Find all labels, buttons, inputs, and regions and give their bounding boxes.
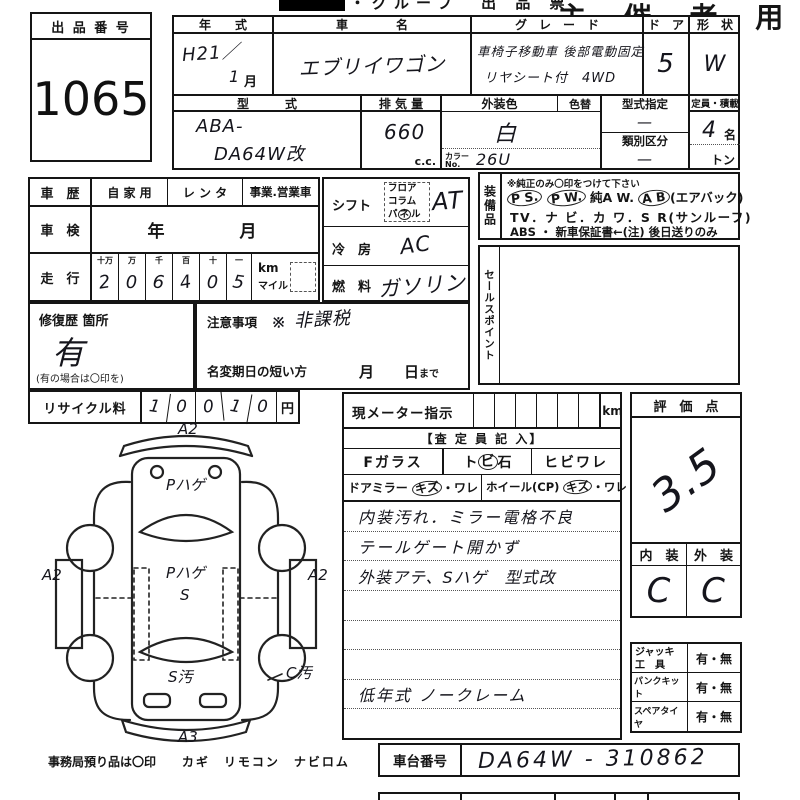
- assessor-note-line: 内装汚れ．ミラー電格不良: [344, 502, 620, 532]
- door-mirror-label: ドアミラー: [348, 481, 408, 495]
- rename-deadline-value: 月 日まで: [359, 361, 439, 382]
- extcolor-value: 白: [494, 116, 517, 148]
- ac-value: AC: [398, 231, 432, 259]
- carname-value: エブリイワゴン: [273, 31, 471, 98]
- assessor-title: 【査 定 員 記 入】: [344, 429, 620, 449]
- capacity-unit: 名: [724, 126, 736, 143]
- ton-row: トン: [690, 144, 740, 172]
- model-value-line2: DA64W改: [214, 140, 305, 166]
- meter-digit-box: [536, 394, 558, 427]
- car-diagram-svg: A2 Pハゲ A2 Pハゲ S A2 S汚 C汚 A3: [40, 420, 332, 746]
- grade-cell: グ レ ー ド 車椅子移動車 後部電動固定 リヤシート付 4WD: [472, 17, 644, 94]
- ton-label: トン: [711, 151, 735, 168]
- lot-number: 1065: [32, 40, 150, 158]
- mirror-wheel-row: ドアミラー キズ・ワレ ホイール(CP) キズ・ワレ: [344, 475, 620, 502]
- shift-panel: パネル: [388, 209, 429, 222]
- chassis-box: 車台番号 DA64W - 310862: [378, 743, 740, 777]
- office-note: 事務局預り品は〇印 カギ リモコン ナビロム: [48, 753, 350, 770]
- bottom-table-divider: [614, 794, 616, 800]
- meter-digit-box: [494, 394, 516, 427]
- crack-label: ヒビワレ: [532, 449, 620, 474]
- recycle-digit: 1: [221, 390, 253, 424]
- inspection-value: 年 月: [92, 207, 318, 254]
- mirror-kizu-circled: キズ: [411, 479, 442, 497]
- sales-point-box: セールスポイント: [478, 245, 740, 385]
- exterior-grade: C: [687, 566, 740, 616]
- odometer-digits: 十万 2 万 0 千 6 百 4 十 0 一 5: [92, 254, 252, 300]
- shift-position-box: フロア コラム パネル: [384, 182, 430, 222]
- spare-tire-label: スペアタイヤ: [632, 702, 688, 731]
- diagram-anno-center: Pハゲ: [166, 564, 207, 582]
- jack-label1: ジャッキ: [635, 646, 687, 659]
- equipment-box: 装備品 ※純正のみ〇印をつけて下さい P S. P W. 純A W. A B(エ…: [478, 172, 740, 240]
- history-private: 自 家 用: [92, 179, 168, 207]
- recycle-fee-label: リサイクル料: [30, 392, 142, 422]
- mirror-ware-label: ・ワレ: [442, 481, 478, 495]
- class-division-value: —: [602, 148, 688, 170]
- car-diagram: A2 Pハゲ A2 Pハゲ S A2 S汚 C汚 A3: [40, 420, 332, 746]
- capacity-cell: 定員・積載 4 名 トン: [690, 94, 740, 170]
- airbag-label: (エアバック): [670, 190, 743, 205]
- diagram-anno-left: A2: [41, 566, 62, 584]
- shift-panel-c: ル: [411, 209, 421, 220]
- type-designation-cell: 型式指定 — 類別区分 —: [602, 94, 690, 170]
- wheel-cell: ホイール(CP) キズ・ワレ: [482, 475, 624, 500]
- assessor-note-line: [344, 709, 620, 738]
- repair-note: (有の場合は〇印を): [36, 370, 124, 385]
- meter-label: 現メーター指示: [352, 402, 454, 422]
- caution-box: 注意事項 ※ 非課税 名変期日の短い方 月 日まで: [195, 302, 470, 390]
- extcolor-cell: 外装色 色替 白 カラー No. 26U: [442, 94, 602, 170]
- capacity-value: 4: [702, 118, 717, 143]
- year-value: H21／: [181, 37, 241, 67]
- diagram-anno-rear: S汚: [168, 668, 195, 686]
- color-no-label2: No.: [445, 160, 460, 169]
- rating-label: 評 価 点: [632, 394, 740, 418]
- meter-digit-box: [473, 394, 495, 427]
- interior-label: 内 装: [632, 544, 687, 566]
- rating-box: 評 価 点 3.5 内 装 外 装 C C: [630, 392, 742, 618]
- odo-digit-cell: 千 6: [146, 254, 173, 300]
- recycle-fee-box: リサイクル料 1 0 0 1 0 円: [28, 390, 300, 424]
- shape-cell: 形 状 W: [690, 17, 740, 94]
- repair-value: 有: [52, 328, 85, 374]
- displacement-value: 660: [384, 120, 425, 144]
- odo-digit: 6: [144, 265, 173, 300]
- glass-row: Fガラス トビ石 ヒビワレ: [344, 449, 620, 475]
- class-division-label: 類別区分: [602, 132, 688, 148]
- tobi-a: ト: [464, 452, 478, 472]
- shift-column: コラム: [388, 196, 429, 209]
- fuel-row: 燃 料 ガソリン: [324, 266, 468, 302]
- rating-value-area: 3.5: [632, 418, 740, 544]
- shift-row: シフト フロア コラム パネル AT: [324, 179, 468, 227]
- shift-panel-a: パ: [388, 209, 398, 220]
- history-commercial: 事業.営業車: [243, 179, 318, 207]
- mile-unit-label: マイル: [258, 277, 288, 292]
- diagram-anno-right: A2: [307, 566, 328, 584]
- tobi-c: 石: [498, 452, 512, 472]
- meter-row: 現メーター指示 km: [344, 394, 620, 429]
- sales-point-strip: セールスポイント: [480, 247, 500, 383]
- type-designation-label: 型式指定: [602, 96, 688, 112]
- assessor-note-line: テールゲート開かず: [344, 532, 620, 562]
- displacement-unit: c.c.: [415, 155, 436, 168]
- model-value-line1: ABA-: [196, 116, 243, 137]
- recycle-digit: 1: [140, 390, 171, 423]
- rename-deadline-label: 名変期日の短い方: [207, 361, 307, 380]
- year-label: 年 式: [174, 17, 272, 34]
- recycle-digit: 0: [250, 392, 277, 422]
- jack-row: ジャッキ 工 具 有・無: [632, 644, 740, 673]
- shift-floor: フロア: [388, 183, 429, 196]
- model-cell: 型 式 ABA- DA64W改: [174, 94, 362, 170]
- color-no-value: 26U: [476, 150, 511, 169]
- stone-chip-label: トビ石: [444, 449, 532, 474]
- odo-place-label: 十: [200, 254, 226, 266]
- odo-digit: 0: [119, 266, 145, 298]
- equipment-label-strip: 装備品: [480, 174, 502, 238]
- type-designation-value: —: [602, 112, 688, 132]
- door-value: 5: [644, 34, 688, 94]
- redaction-bar: [279, 0, 345, 11]
- assessor-note-line: [344, 650, 620, 680]
- odo-digit-cell: 十 0: [200, 254, 227, 300]
- grade-label: グ レ ー ド: [472, 17, 642, 34]
- odo-digit-cell: 十万 2: [92, 254, 119, 300]
- jack-value: 有・無: [688, 644, 740, 672]
- assessor-note-line: [344, 591, 620, 621]
- bottom-table-divider: [554, 794, 556, 800]
- carname-cell: 車 名 エブリイワゴン: [274, 17, 472, 94]
- ab-circled: A B: [638, 188, 671, 207]
- diagram-anno-center2: S: [180, 586, 190, 604]
- extcolor-label: 外装色: [442, 96, 557, 112]
- exterior-label: 外 装: [687, 544, 740, 566]
- front-glass-label: Fガラス: [344, 449, 444, 474]
- door-cell: ド ア 5: [644, 17, 690, 94]
- fuel-label: 燃 料: [332, 276, 371, 295]
- assessor-note-line: 低年式 ノークレーム: [344, 680, 620, 710]
- bottom-partial-table: [378, 792, 740, 800]
- repair-label: 修復歴 箇所: [39, 310, 109, 329]
- caution-label: 注意事項: [207, 312, 257, 331]
- equipment-label: 装備品: [482, 185, 499, 227]
- sheet-title: ・グループ 出 品 票: [350, 0, 572, 13]
- chassis-label: 車台番号: [380, 745, 462, 775]
- meter-unit: km: [599, 394, 624, 427]
- year-month-label: 月: [244, 71, 257, 90]
- aw-label: 純A W.: [590, 190, 634, 205]
- assessor-note-line: [344, 621, 620, 651]
- grade-value-line1: 車椅子移動車 後部電動固定: [477, 41, 644, 60]
- odo-digit: 4: [170, 264, 201, 300]
- office-note-label: 事務局預り品は〇印: [48, 755, 156, 769]
- caution-value: ※ 非課税: [270, 304, 351, 334]
- tobi-circled: ビ: [478, 454, 498, 470]
- rating-value: 3.5: [641, 438, 730, 522]
- odo-digit-cell: 一 5: [227, 254, 252, 300]
- puncture-kit-value: 有・無: [688, 673, 740, 701]
- spare-tire-row: スペアタイヤ 有・無: [632, 702, 740, 731]
- rename-made: まで: [419, 369, 439, 380]
- bottom-table-divider: [647, 794, 649, 800]
- diagram-anno-bottom: A3: [177, 728, 198, 746]
- interior-grade: C: [632, 566, 687, 616]
- capacity-label: 定員・積載: [690, 96, 740, 112]
- jack-label-cell: ジャッキ 工 具: [632, 644, 688, 672]
- puncture-kit-row: パンクキット 有・無: [632, 673, 740, 702]
- equipment-line1: P S. P W. 純A W. A B(エアバック): [507, 187, 743, 206]
- chassis-value: DA64W - 310862: [478, 745, 708, 774]
- lot-label: 出 品 番 号: [32, 14, 150, 40]
- spare-tire-value: 有・無: [688, 702, 740, 731]
- sales-point-label: セールスポイント: [482, 269, 497, 361]
- odo-place-label: 万: [119, 254, 145, 266]
- shape-value: W: [690, 34, 740, 94]
- shift-panel-circled: ネ: [398, 209, 412, 221]
- history-rental: レ ン タ: [168, 179, 243, 207]
- odo-digit: 0: [200, 266, 226, 298]
- history-table: 車 歴 自 家 用 レ ン タ 事業.営業車 車 検 年 月 走 行 十万 2 …: [28, 177, 320, 302]
- mileage-label: 走 行: [30, 254, 92, 300]
- ac-row: 冷 房 AC: [324, 227, 468, 266]
- ac-label: 冷 房: [332, 239, 371, 258]
- meter-digit-box: [578, 394, 600, 427]
- lot-box: 出 品 番 号 1065: [30, 12, 152, 162]
- history-label: 車 歴: [30, 179, 92, 207]
- puncture-kit-label: パンクキット: [632, 673, 688, 701]
- recycle-digit: 0: [169, 392, 196, 422]
- wheel-kizu-circled: キズ: [563, 479, 593, 496]
- unit-check-box: [290, 262, 316, 292]
- tools-box: ジャッキ 工 具 有・無 パンクキット 有・無 スペアタイヤ 有・無: [630, 642, 742, 733]
- assessor-notes: 内装汚れ．ミラー電格不良 テールゲート開かず 外装アテ、Sハゲ 型式改 低年式 …: [344, 502, 620, 738]
- recycle-unit: 円: [277, 392, 298, 422]
- assessor-note-line: 外装アテ、Sハゲ 型式改: [344, 561, 620, 591]
- diagram-anno-hood: Pハゲ: [166, 476, 207, 494]
- model-label: 型 式: [174, 96, 360, 112]
- wheel-ware-label: ・ワレ: [592, 480, 627, 494]
- odo-digit-cell: 万 0: [119, 254, 146, 300]
- bottom-table-divider: [460, 794, 462, 800]
- rename-month-day: 月 日: [359, 363, 419, 381]
- jack-label2: 工 具: [635, 659, 687, 672]
- drivetrain-box: シフト フロア コラム パネル AT 冷 房 AC 燃 料 ガソリン: [322, 177, 470, 302]
- office-note-items: カギ リモコン ナビロム: [182, 755, 350, 769]
- meter-digit-box: [515, 394, 537, 427]
- shift-value: AT: [431, 186, 464, 216]
- door-label: ド ア: [644, 17, 688, 34]
- shape-label: 形 状: [690, 17, 740, 34]
- vehicle-table: 年 式 H21／ 1 月 車 名 エブリイワゴン グ レ ー ド 車椅子移動車 …: [172, 15, 740, 170]
- auction-sheet: ・グループ 出 品 票 主 催 者 用 出 品 番 号 1065 年 式 H21…: [0, 0, 800, 800]
- odo-digit-cell: 百 4: [173, 254, 200, 300]
- repair-box: 修復歴 箇所 有 (有の場合は〇印を): [28, 302, 195, 390]
- odo-digit: 2: [90, 264, 120, 299]
- diagram-anno-front: A2: [177, 420, 198, 438]
- year-cell: 年 式 H21／ 1 月: [174, 17, 274, 94]
- pw-circled: P W.: [546, 188, 587, 208]
- diagram-anno-side: C汚: [286, 664, 313, 682]
- meter-digit-box: [557, 394, 579, 427]
- ps-circled: P S.: [506, 188, 543, 208]
- odo-digit: 5: [225, 264, 253, 299]
- color-no-row: カラー No. 26U: [442, 148, 600, 172]
- km-unit-label: km: [258, 261, 278, 275]
- grade-value-line2: リヤシート付 4WD: [484, 67, 616, 86]
- door-mirror-cell: ドアミラー キズ・ワレ: [344, 475, 482, 500]
- equipment-line3: ABS ・ 新車保証書←(注) 後日送りのみ: [510, 224, 718, 240]
- inspection-label: 車 検: [30, 207, 92, 254]
- wheel-label: ホイール(CP): [486, 480, 559, 494]
- displacement-label: 排 気 量: [362, 96, 440, 112]
- color-change-label: 色替: [557, 96, 602, 112]
- displacement-cell: 排 気 量 660 c.c.: [362, 94, 442, 170]
- year-month-value: 1: [229, 67, 240, 86]
- assessor-box: 現メーター指示 km 【査 定 員 記 入】 Fガラス トビ石 ヒビワレ ドアミ…: [342, 392, 622, 740]
- shift-label: シフト: [332, 195, 371, 214]
- fuel-value: ガソリン: [377, 266, 467, 304]
